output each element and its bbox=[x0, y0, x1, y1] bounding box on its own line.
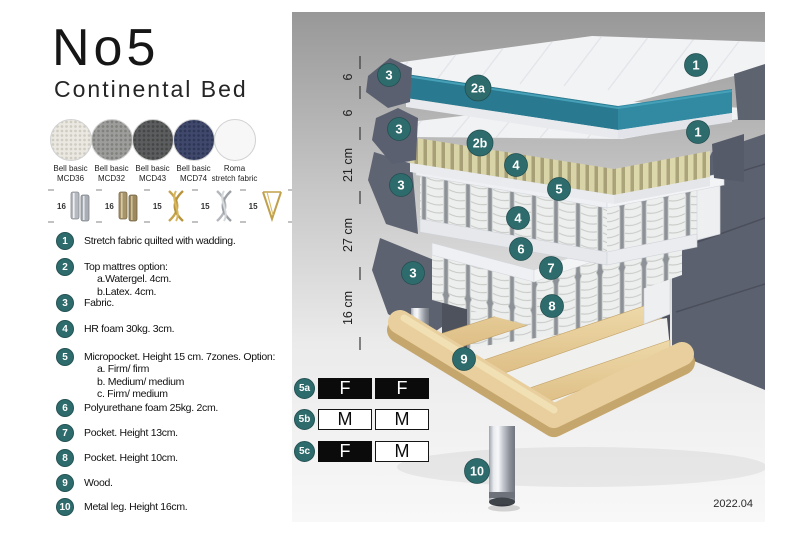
leg-height: 15 bbox=[201, 202, 210, 211]
callout-3: 3 bbox=[388, 118, 411, 141]
callout-6: 6 bbox=[510, 238, 533, 261]
divider bbox=[48, 189, 54, 223]
spec-item-9: 9 Wood. bbox=[56, 474, 113, 492]
spec-number-badge: 3 bbox=[56, 294, 74, 312]
callout-9: 9 bbox=[453, 348, 476, 371]
spec-text: Wood. bbox=[84, 477, 113, 490]
fabric-swatch: Bell basicMCD32 bbox=[91, 119, 132, 183]
fabric-name: Bell basic bbox=[135, 164, 169, 173]
spec-number-badge: 1 bbox=[56, 232, 74, 250]
svg-text:7: 7 bbox=[547, 261, 554, 276]
divider bbox=[144, 189, 150, 223]
callout-10: 10 bbox=[465, 459, 490, 484]
spec-text: Pocket. Height 13cm. bbox=[84, 427, 178, 440]
svg-text:3: 3 bbox=[409, 266, 416, 281]
callout-3: 3 bbox=[402, 262, 425, 285]
spec-text: b. Medium/ medium bbox=[84, 376, 275, 389]
svg-text:3: 3 bbox=[395, 122, 402, 137]
spec-number-badge: 4 bbox=[56, 320, 74, 338]
ruler-label: 16 cm bbox=[341, 291, 355, 325]
page-subtitle: Continental Bed bbox=[54, 76, 248, 103]
fabric-swatch-circle bbox=[132, 119, 174, 161]
svg-text:2a: 2a bbox=[471, 82, 486, 96]
leg-height: 15 bbox=[153, 202, 162, 211]
callout-3: 3 bbox=[390, 174, 413, 197]
callout-5: 5 bbox=[548, 178, 571, 201]
svg-text:4: 4 bbox=[514, 211, 522, 226]
callout-3: 3 bbox=[378, 64, 401, 87]
spec-text: a. Firm/ firm bbox=[84, 363, 275, 376]
callout-4: 4 bbox=[507, 207, 530, 230]
spec-item-8: 8 Pocket. Height 10cm. bbox=[56, 449, 178, 467]
page-title: No5 bbox=[52, 18, 159, 78]
fabric-name: Bell basic bbox=[176, 164, 210, 173]
leg-option-twisted-silver: 15 bbox=[201, 189, 237, 223]
fabric-swatch-circle bbox=[50, 119, 92, 161]
leg-icon-cylinder-silver bbox=[67, 189, 93, 223]
fabric-swatch: Bell basicMCD36 bbox=[50, 119, 91, 183]
dimension-ruler: 6 6 21 cm 27 cm 16 cm bbox=[341, 56, 360, 350]
fabric-name: Roma bbox=[224, 164, 245, 173]
spec-text: HR foam 30kg. 3cm. bbox=[84, 323, 174, 336]
fabric-swatch: Romastretch fabric bbox=[214, 119, 255, 183]
spec-item-4: 4 HR foam 30kg. 3cm. bbox=[56, 320, 174, 338]
spec-item-1: 1 Stretch fabric quilted with wadding. bbox=[56, 232, 235, 250]
callout-2b: 2b bbox=[467, 130, 493, 156]
spec-item-6: 6 Polyurethane foam 25kg. 2cm. bbox=[56, 399, 218, 417]
fabric-swatches: Bell basicMCD36 Bell basicMCD32 Bell bas… bbox=[50, 119, 255, 183]
callout-4: 4 bbox=[505, 154, 528, 177]
spec-text: Top mattres option: bbox=[84, 261, 171, 274]
spec-item-7: 7 Pocket. Height 13cm. bbox=[56, 424, 178, 442]
svg-text:3: 3 bbox=[397, 178, 404, 193]
divider bbox=[192, 189, 198, 223]
spec-item-5: 5 Micropocket. Height 15 cm. 7zones. Opt… bbox=[56, 348, 275, 401]
svg-text:4: 4 bbox=[512, 158, 520, 173]
leg-option-cylinder-bronze: 16 bbox=[105, 189, 141, 223]
leg-icon-cylinder-bronze bbox=[115, 189, 141, 223]
spec-text: Micropocket. Height 15 cm. 7zones. Optio… bbox=[84, 351, 275, 364]
floor-shadow bbox=[397, 447, 765, 487]
spec-text: Stretch fabric quilted with wadding. bbox=[84, 235, 235, 248]
spec-item-3: 3 Fabric. bbox=[56, 294, 114, 312]
fabric-swatch: Bell basicMCD43 bbox=[132, 119, 173, 183]
fabric-swatch-circle bbox=[214, 119, 256, 161]
fabric-code: MCD43 bbox=[139, 174, 166, 183]
leg-option-hairpin-gold: 15 bbox=[249, 189, 285, 223]
spec-number-badge: 8 bbox=[56, 449, 74, 467]
callout-1: 1 bbox=[687, 121, 710, 144]
bed-cutaway-diagram: 6 6 21 cm 27 cm 16 cm 3 2a 1 3 2b 1 4 5 … bbox=[292, 12, 765, 522]
callout-1: 1 bbox=[685, 54, 708, 77]
fabric-code: MCD74 bbox=[180, 174, 207, 183]
spec-number-badge: 7 bbox=[56, 424, 74, 442]
leg-icon-hairpin-gold bbox=[259, 189, 285, 223]
fabric-swatch-circle bbox=[173, 119, 215, 161]
spec-text: Metal leg. Height 16cm. bbox=[84, 501, 187, 514]
ruler-label: 6 bbox=[341, 109, 355, 116]
spec-text: a.Watergel. 4cm. bbox=[84, 273, 171, 286]
version-stamp: 2022.04 bbox=[713, 498, 753, 510]
leg-icon-twisted-gold bbox=[163, 189, 189, 223]
svg-text:1: 1 bbox=[694, 125, 701, 140]
callout-7: 7 bbox=[540, 257, 563, 280]
svg-text:9: 9 bbox=[460, 352, 467, 367]
fabric-name: Bell basic bbox=[94, 164, 128, 173]
leg-height: 15 bbox=[249, 202, 258, 211]
spec-text: Fabric. bbox=[84, 297, 114, 310]
ruler-label: 21 cm bbox=[341, 148, 355, 182]
fabric-swatch: Bell basicMCD74 bbox=[173, 119, 214, 183]
divider bbox=[240, 189, 246, 223]
svg-text:10: 10 bbox=[470, 465, 484, 479]
spec-number-badge: 6 bbox=[56, 399, 74, 417]
spec-text: Polyurethane foam 25kg. 2cm. bbox=[84, 402, 218, 415]
callout-2a: 2a bbox=[465, 75, 491, 101]
divider bbox=[96, 189, 102, 223]
spec-number-badge: 5 bbox=[56, 348, 74, 366]
ruler-label: 27 cm bbox=[341, 218, 355, 252]
callout-8: 8 bbox=[541, 295, 564, 318]
spec-number-badge: 2 bbox=[56, 258, 74, 276]
svg-text:2b: 2b bbox=[473, 137, 488, 151]
leg-icon-twisted-silver bbox=[211, 189, 237, 223]
leg-height: 16 bbox=[57, 202, 66, 211]
spec-item-10: 10 Metal leg. Height 16cm. bbox=[56, 498, 187, 516]
spec-number-badge: 9 bbox=[56, 474, 74, 492]
spec-number-badge: 10 bbox=[56, 498, 74, 516]
spec-text: Pocket. Height 10cm. bbox=[84, 452, 178, 465]
fabric-code: MCD36 bbox=[57, 174, 84, 183]
fabric-name: Bell basic bbox=[53, 164, 87, 173]
svg-text:8: 8 bbox=[548, 299, 555, 314]
end-cap bbox=[712, 134, 744, 182]
leg-option-twisted-gold: 15 bbox=[153, 189, 189, 223]
svg-text:6: 6 bbox=[517, 242, 524, 257]
leg-height: 16 bbox=[105, 202, 114, 211]
ruler-label: 6 bbox=[341, 73, 355, 80]
leg-option-cylinder-silver: 16 bbox=[57, 189, 93, 223]
fabric-code: stretch fabric bbox=[212, 174, 258, 183]
fabric-code: MCD32 bbox=[98, 174, 125, 183]
spec-item-2: 2 Top mattres option: a.Watergel. 4cm. b… bbox=[56, 258, 171, 298]
svg-text:1: 1 bbox=[692, 58, 699, 73]
svg-text:5: 5 bbox=[555, 182, 562, 197]
fabric-swatch-circle bbox=[91, 119, 133, 161]
diagram-panel: 6 6 21 cm 27 cm 16 cm 3 2a 1 3 2b 1 4 5 … bbox=[292, 12, 765, 522]
svg-text:3: 3 bbox=[385, 68, 392, 83]
